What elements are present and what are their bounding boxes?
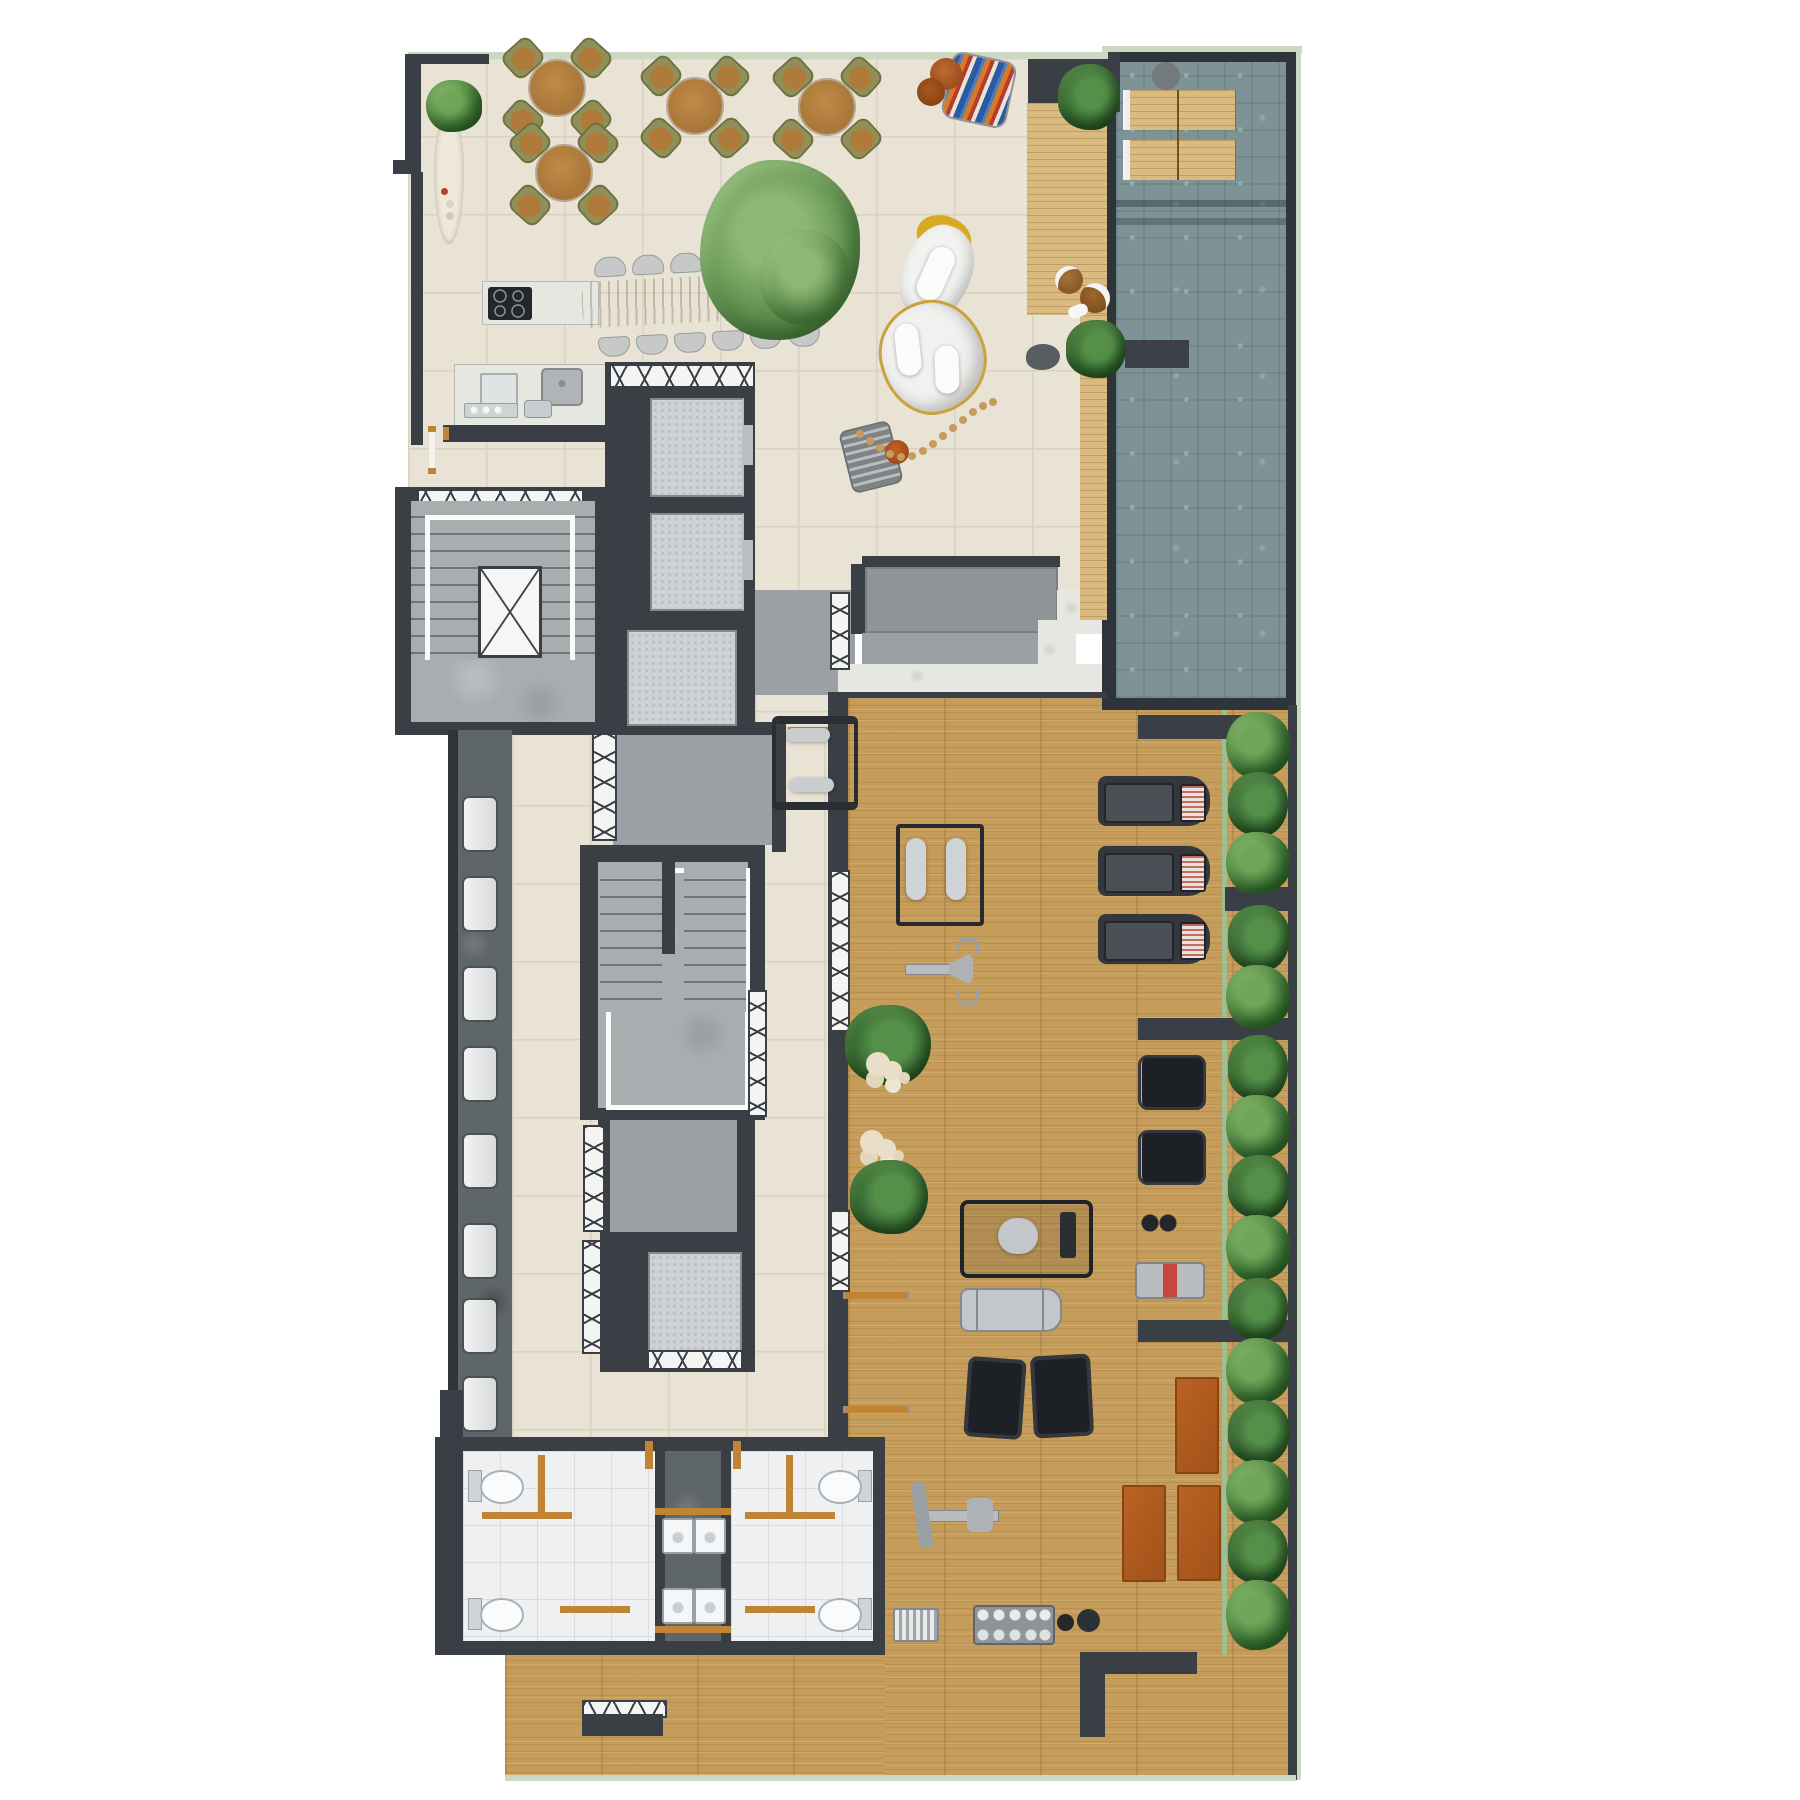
corridor-bench <box>464 1378 496 1430</box>
pebble <box>866 437 874 445</box>
round-table <box>530 61 584 115</box>
wall-west-upper <box>405 54 421 174</box>
gym-top-edge <box>828 692 1107 698</box>
hedge-plant <box>1228 1400 1290 1464</box>
elevator-door-recess <box>742 540 753 580</box>
hedge-plant <box>1228 1155 1290 1219</box>
toilet-bowl <box>818 1470 862 1504</box>
pool-bench <box>1125 340 1189 368</box>
gym-corner-wall-v <box>1080 1652 1105 1737</box>
barbell-bench-small <box>1135 1262 1205 1299</box>
pool-light-disc <box>1152 62 1180 90</box>
sofa-cushion <box>912 243 959 305</box>
elevator-cabin <box>627 630 737 726</box>
suite-bench <box>786 1455 793 1515</box>
pebble <box>856 430 864 438</box>
dining-chair <box>631 254 664 276</box>
kitchen-partition-wall <box>443 425 613 442</box>
exercise-mat <box>1175 1377 1219 1474</box>
vanity-shelf <box>655 1508 731 1515</box>
suite-bench <box>560 1606 630 1613</box>
treadmill-console <box>1180 854 1206 892</box>
hedge-plant <box>1226 832 1290 894</box>
door-leaf <box>429 432 435 468</box>
deck-side-table <box>1055 266 1083 294</box>
leg-press-plate <box>1060 1212 1076 1258</box>
toilet-bowl <box>480 1470 524 1504</box>
pebble <box>876 444 884 452</box>
pebble <box>949 424 957 432</box>
vanity-sink <box>662 1518 694 1554</box>
bar-item <box>446 200 454 208</box>
rack-bench <box>786 728 830 742</box>
hedge-plant <box>1226 1215 1290 1281</box>
corridor-bench <box>464 1048 496 1100</box>
counter-top-edge <box>862 556 1060 567</box>
barbell-rack <box>772 716 858 810</box>
station-bench <box>906 838 926 900</box>
treadmill-belt <box>1104 921 1174 961</box>
potted-plant <box>1058 64 1120 130</box>
pebble <box>908 452 916 460</box>
dining-chair <box>594 256 627 278</box>
toaster <box>524 400 552 418</box>
vestibule-b-east-wall <box>737 1120 755 1232</box>
suite-bench <box>482 1512 572 1519</box>
elevator-cabin <box>648 1252 742 1352</box>
gym-window <box>830 1210 850 1292</box>
aerobic-step-stack <box>893 1608 939 1642</box>
terrace-tree-cluster <box>760 230 850 325</box>
round-table <box>668 79 722 133</box>
pool-step-line <box>1116 218 1286 225</box>
potted-plant <box>1066 320 1126 378</box>
corridor-bench-strip <box>448 730 512 1445</box>
hedge-plant <box>1228 772 1288 836</box>
dining-chair <box>674 332 707 354</box>
dumbbell-rack <box>973 1605 1055 1645</box>
pool-lounger-row <box>1123 90 1236 130</box>
kitchen-sink <box>480 373 518 406</box>
elevator-cabin <box>650 513 744 611</box>
vestibule-b-floor <box>610 1120 737 1232</box>
elevator-door-recess <box>742 425 753 465</box>
suite-bench <box>538 1455 545 1515</box>
vanity-shelf <box>655 1626 731 1633</box>
machine-arm <box>957 990 979 1005</box>
suite-bench <box>745 1606 815 1613</box>
side-table <box>917 78 945 106</box>
medicine-ball <box>1077 1609 1100 1632</box>
counter-tray <box>464 403 518 418</box>
flat-bench <box>1030 1353 1094 1438</box>
vanity-sink <box>662 1588 694 1624</box>
adjustable-bench <box>960 1288 1062 1332</box>
pec-deck-machine <box>905 938 975 1004</box>
wall-west <box>411 172 423 445</box>
wall-barre <box>845 1406 907 1413</box>
stair-lower-spine <box>662 862 675 954</box>
gym-window <box>830 592 850 670</box>
door-jamb <box>428 468 436 474</box>
stair-lower-flight <box>600 864 662 1012</box>
corridor-bench <box>464 878 496 930</box>
dining-chair <box>636 334 669 356</box>
pool-step-line <box>1116 200 1286 207</box>
spa-wall-edge <box>851 564 865 634</box>
treadmill-belt <box>1104 783 1174 823</box>
pebble <box>989 398 997 406</box>
gym-plant <box>845 1005 931 1085</box>
pebble <box>897 453 905 461</box>
kettlebell-pair <box>1140 1212 1178 1234</box>
round-table <box>800 80 854 134</box>
treadmill-console <box>1180 784 1206 822</box>
rowing-station <box>915 1478 1003 1554</box>
hedge-plant <box>1226 965 1290 1029</box>
hedge-plant <box>1226 1338 1290 1404</box>
sofa-cushion <box>934 345 960 394</box>
hedge-plant <box>1226 1460 1290 1524</box>
treadmill <box>1098 776 1210 826</box>
medicine-ball <box>1057 1614 1074 1631</box>
stair-upper-lightwell <box>478 566 542 658</box>
elevator-b-side-glazing <box>582 1240 602 1354</box>
pool-lounger-row <box>1123 140 1236 180</box>
bottom-wood-floor <box>505 1653 885 1780</box>
spa-floor-lower <box>862 633 1058 667</box>
exercise-mat <box>1122 1485 1166 1582</box>
stair-lower-glazing-east <box>748 990 767 1117</box>
pebble <box>979 402 987 410</box>
stair-lower-flight <box>684 864 746 1012</box>
pebble <box>939 432 947 440</box>
hedge-planter-edge <box>1222 710 1227 1655</box>
leg-press-seat <box>998 1218 1038 1254</box>
hedge-plant <box>1226 1580 1290 1650</box>
stair-climber <box>1138 1055 1206 1110</box>
pebble <box>929 440 937 448</box>
corridor-wall-stub <box>440 1390 463 1440</box>
potted-plant <box>426 80 482 132</box>
pouf-cluster <box>866 1052 890 1076</box>
pebble <box>919 447 927 455</box>
toilet-bowl <box>480 1598 524 1632</box>
vestibule-a-glazing <box>592 733 617 841</box>
suite-door-jamb <box>645 1441 653 1469</box>
corridor-bench <box>464 1225 496 1277</box>
pebble <box>969 408 977 416</box>
wall-barre <box>845 1292 907 1299</box>
toilet-bowl <box>818 1598 862 1632</box>
cooktop <box>488 287 532 320</box>
row-seat <box>967 1498 993 1532</box>
treadmill-console <box>1180 922 1206 960</box>
bar-item-red <box>441 188 448 195</box>
treadmill-belt <box>1104 853 1174 893</box>
station-bench <box>946 838 966 900</box>
round-table <box>537 146 591 200</box>
stair-climber <box>1138 1130 1206 1185</box>
treadmill <box>1098 914 1210 964</box>
hedge-plant <box>1228 1520 1288 1584</box>
hedge-plant <box>1228 1035 1288 1101</box>
pebble <box>886 450 894 458</box>
treadmill <box>1098 846 1210 896</box>
sofa-cushion <box>893 322 922 376</box>
machine-arm <box>957 938 979 953</box>
floor-plan-render <box>0 0 1800 1800</box>
dining-chair <box>712 330 745 352</box>
wall-end-trim <box>443 427 449 440</box>
hedge-plant <box>1226 712 1290 778</box>
corridor-bench <box>464 968 496 1020</box>
elevator-lobby-glazing <box>609 364 755 388</box>
rack-bench <box>790 778 834 792</box>
dining-chair <box>598 336 631 358</box>
corridor-bench <box>464 1135 496 1187</box>
stair-upper-landing <box>411 660 595 722</box>
pouf-cluster <box>860 1130 884 1154</box>
machine-seat <box>949 952 973 986</box>
gym-plant <box>850 1160 928 1234</box>
hedge-plant <box>1228 905 1290 971</box>
vanity-sink <box>694 1518 726 1554</box>
pebble <box>959 416 967 424</box>
hedge-plant <box>1226 1095 1290 1159</box>
bench-press-station <box>896 824 984 926</box>
flat-bench <box>963 1356 1026 1440</box>
vestibule-a-floor <box>613 735 772 845</box>
corridor-bench <box>464 798 496 850</box>
exercise-mat <box>1177 1485 1221 1581</box>
vestibule-b-glazing <box>583 1125 605 1232</box>
bottom-wall-box <box>582 1714 663 1736</box>
corridor-bench <box>464 1300 496 1352</box>
hedge-plant <box>1228 1278 1288 1340</box>
leg-press-machine <box>960 1200 1093 1278</box>
massage-counter <box>865 567 1058 633</box>
vanity-sink <box>694 1588 726 1624</box>
dining-chair <box>669 252 702 274</box>
gym-window <box>830 870 850 1032</box>
elevator-b-door-glazing <box>647 1350 743 1370</box>
suite-door-jamb <box>733 1441 741 1469</box>
deck-marble-end <box>1038 620 1076 694</box>
pool-lounger-divider <box>1177 90 1179 180</box>
bottom-edge-line <box>505 1775 1296 1781</box>
elevator-cabin <box>650 398 744 497</box>
